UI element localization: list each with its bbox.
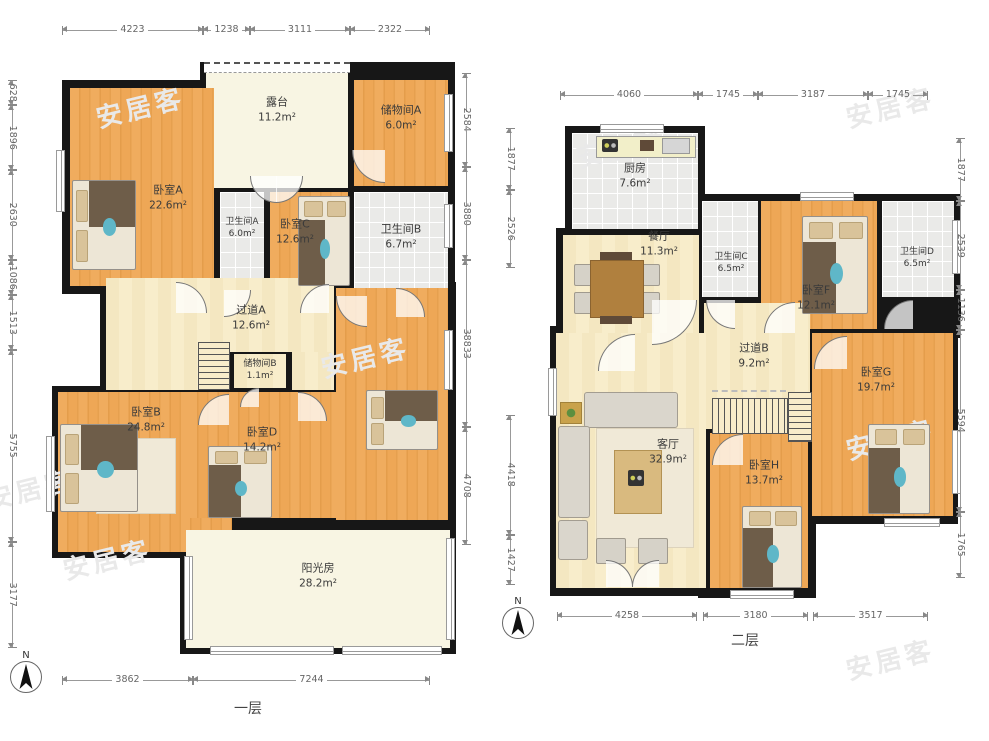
dim-line: [466, 168, 467, 206]
dim-line: [12, 223, 13, 259]
room-label-storage-a: 储物间A6.0m²: [381, 103, 422, 132]
dim-line: [466, 128, 467, 166]
dim-line: [12, 351, 13, 438]
window: [800, 192, 854, 201]
compass-floor2: N: [502, 596, 534, 639]
dimension-horizontal: 7244: [193, 674, 430, 686]
dim-line: [327, 680, 429, 681]
room-hallway-a: [106, 278, 334, 352]
pillow: [371, 423, 384, 445]
room-label-bedroom-b: 卧室B24.8m²: [127, 405, 165, 434]
dim-line: [828, 95, 867, 96]
dimension-horizontal: 3111: [250, 24, 350, 36]
room-name: 卫生间C: [714, 251, 747, 263]
bed: [366, 390, 438, 450]
dim-line: [251, 30, 285, 31]
pillow: [65, 434, 79, 465]
dim-line: [242, 30, 249, 31]
compass-floor1: N: [10, 650, 42, 693]
room-area: 24.8m²: [127, 420, 165, 434]
dim-line: [12, 330, 13, 349]
watermark: 安居客: [842, 630, 938, 688]
teal-accent: [894, 467, 906, 486]
room-name: 卧室F: [797, 283, 835, 298]
pillow: [304, 201, 323, 217]
dim-line: [466, 351, 467, 426]
dim-line: [869, 95, 883, 96]
dimension-vertical: 3880: [460, 167, 472, 260]
cap: [600, 316, 632, 324]
dim-line: [466, 261, 467, 336]
room-name: 储物间A: [381, 103, 422, 118]
room-area: 22.6m²: [149, 198, 187, 212]
floor-caption-floor1: 一层: [234, 698, 262, 718]
room-label-bedroom-a: 卧室A22.6m²: [149, 183, 187, 212]
dim-line: [960, 318, 961, 329]
room-label-kitchen: 厨房7.6m²: [619, 161, 650, 190]
pillow: [327, 201, 346, 217]
dim-line: [960, 177, 961, 200]
tbrown: [590, 260, 644, 318]
dimension-horizontal: 1238: [203, 24, 250, 36]
dimension-vertical: 1427: [504, 535, 516, 585]
stair-dashed-line: [712, 390, 786, 396]
dim-line: [466, 221, 467, 259]
dim-line: [561, 95, 614, 96]
stove: [602, 139, 618, 152]
dim-line: [510, 483, 511, 534]
window: [600, 124, 664, 133]
dim-value: 4223: [120, 25, 144, 35]
room-bath-c: [702, 201, 758, 297]
dim-line: [913, 95, 927, 96]
pillow: [76, 230, 88, 262]
dim-line: [12, 100, 13, 104]
room-area: 13.7m²: [745, 473, 783, 487]
dim-line: [315, 30, 349, 31]
room-name: 卧室A: [149, 183, 187, 198]
dim-line: [466, 74, 467, 112]
cap: [600, 252, 632, 260]
room-area: 14.2m²: [243, 440, 281, 454]
dim-line: [814, 616, 855, 617]
sink: [662, 138, 690, 154]
dim-line: [466, 494, 467, 544]
room-label-sunroom: 阳光房28.2m²: [299, 561, 337, 590]
dim-line: [558, 616, 612, 617]
teal-accent: [97, 461, 114, 478]
bed: [60, 424, 138, 512]
room-area: 12.6m²: [276, 232, 314, 246]
dim-line: [704, 616, 740, 617]
room-label-bath-a: 卫生间A6.0m²: [225, 216, 258, 240]
compass-north-label: N: [22, 650, 29, 661]
window: [444, 330, 453, 390]
room-area: 32.9m²: [649, 452, 687, 466]
window: [884, 518, 940, 527]
room-label-bedroom-c: 卧室C12.6m²: [276, 217, 314, 246]
pillow: [839, 222, 863, 239]
room-area: 1.1m²: [243, 370, 276, 382]
dim-line: [148, 30, 202, 31]
dim-line: [960, 202, 961, 238]
room-label-bath-c: 卫生间C6.5m²: [714, 251, 747, 275]
window: [730, 590, 794, 599]
window: [446, 538, 455, 640]
room-label-living: 客厅32.9m²: [649, 437, 687, 466]
stairs-h: [712, 398, 788, 434]
pillow: [875, 429, 897, 445]
dim-line: [204, 30, 211, 31]
bed: [72, 180, 136, 270]
dim-value: 4258: [615, 611, 639, 621]
window: [210, 646, 334, 655]
dimension-vertical: 5755: [6, 350, 18, 542]
dimension-vertical: 1765: [954, 512, 966, 578]
dimension-horizontal: 4258: [557, 610, 697, 622]
dim-line: [644, 95, 697, 96]
room-name: 过道B: [738, 341, 769, 356]
teal-accent: [103, 218, 117, 236]
dimension-vertical: 628: [6, 80, 18, 105]
dim-value: 2322: [378, 25, 402, 35]
room-area: 11.3m²: [640, 244, 678, 258]
sofa: [584, 392, 678, 428]
room-label-bedroom-d: 卧室D14.2m²: [243, 425, 281, 454]
dim-value: 3187: [801, 90, 825, 100]
room-name: 客厅: [649, 437, 687, 452]
dim-line: [759, 95, 798, 96]
dim-line: [12, 454, 13, 541]
pillow: [775, 511, 797, 526]
room-area: 12.1m²: [797, 298, 835, 312]
window: [548, 368, 557, 416]
dimension-vertical: 5594: [954, 330, 966, 512]
compass-circle: [502, 607, 534, 639]
dimension-horizontal: 3862: [62, 674, 193, 686]
dimension-vertical: 2526: [504, 190, 516, 268]
dimension-vertical: 1086: [6, 260, 18, 295]
room-name: 卫生间D: [900, 246, 934, 258]
dim-line: [194, 680, 296, 681]
dim-line: [960, 331, 961, 413]
room-area: 6.5m²: [900, 258, 934, 270]
window: [46, 436, 55, 512]
bed: [208, 446, 272, 518]
room-label-hallway-b: 过道B9.2m²: [738, 341, 769, 370]
dim-line: [12, 603, 13, 647]
dim-line: [466, 428, 467, 478]
room-area: 6.5m²: [714, 263, 747, 275]
room-area: 11.2m²: [258, 110, 296, 124]
dimension-vertical: 1513: [6, 295, 18, 350]
room-label-bedroom-f: 卧室F12.1m²: [797, 283, 835, 312]
dimension-horizontal: 1745: [698, 89, 758, 101]
window: [342, 646, 442, 655]
room-area: 9.2m²: [738, 356, 769, 370]
floor-caption-floor2: 二层: [731, 630, 759, 650]
dim-line: [63, 30, 117, 31]
dim-line: [960, 253, 961, 289]
dim-line: [510, 568, 511, 584]
dim-line: [743, 95, 757, 96]
bed: [868, 424, 930, 514]
room-name: 卫生间A: [225, 216, 258, 228]
dim-value: 1745: [716, 90, 740, 100]
teal-accent: [830, 263, 843, 284]
room-label-bedroom-h: 卧室H13.7m²: [745, 458, 783, 487]
room-label-bath-b: 卫生间B6.7m²: [381, 222, 422, 251]
room-name: 卧室G: [857, 365, 895, 380]
dim-value: 3862: [115, 675, 139, 685]
sofa: [558, 426, 590, 518]
dim-line: [12, 543, 13, 587]
room-name: 露台: [258, 95, 296, 110]
dim-line: [642, 616, 696, 617]
teal-accent: [401, 415, 416, 427]
dimension-vertical: 38833: [460, 260, 472, 427]
dimension-vertical: 2630: [6, 170, 18, 260]
room-area: 6.7m²: [381, 237, 422, 251]
dimension-vertical: 4418: [504, 415, 516, 535]
room-name: 卧室C: [276, 217, 314, 232]
cap: [640, 140, 654, 151]
floorplan-canvas: 露台11.2m²储物间A6.0m²卧室A22.6m²卫生间A6.0m²卧室C12…: [0, 0, 989, 741]
compass-circle: [10, 661, 42, 693]
dim-line: [510, 237, 511, 267]
watermark: 安居客: [842, 78, 938, 136]
room-label-storage-b: 储物间B1.1m²: [243, 358, 276, 382]
dim-line: [510, 167, 511, 189]
dimension-vertical: 1877: [954, 138, 966, 201]
room-label-hallway-a: 过道A12.6m²: [232, 303, 270, 332]
dimension-horizontal: 3187: [758, 89, 868, 101]
room-label-terrace: 露台11.2m²: [258, 95, 296, 124]
teal-accent: [235, 481, 247, 496]
pillow: [809, 222, 833, 239]
dim-line: [960, 429, 961, 511]
room-area: 12.6m²: [232, 318, 270, 332]
dim-line: [886, 616, 927, 617]
room-name: 卧室B: [127, 405, 165, 420]
room-area: 7.6m²: [619, 176, 650, 190]
pillow: [76, 190, 88, 222]
stairs-v: [198, 342, 230, 390]
dim-line: [12, 285, 13, 294]
room-name: 储物间B: [243, 358, 276, 370]
pillow: [371, 397, 384, 419]
sofa: [558, 520, 588, 560]
terrace-dashed-edge: [204, 62, 350, 73]
room-terrace: [206, 68, 348, 188]
pillow: [903, 429, 925, 445]
dim-value: 7244: [299, 675, 323, 685]
chair: [642, 264, 660, 286]
room-label-dining: 餐厅11.3m²: [640, 229, 678, 258]
pillow: [215, 451, 238, 464]
room-name: 阳光房: [299, 561, 337, 576]
dim-value: 628: [7, 83, 17, 101]
dim-value: 1238: [214, 25, 238, 35]
dim-line: [143, 680, 192, 681]
room-name: 卫生间B: [381, 222, 422, 237]
room-label-bedroom-g: 卧室G19.7m²: [857, 365, 895, 394]
window: [444, 204, 453, 248]
dim-line: [699, 95, 713, 96]
room-area: 6.0m²: [381, 118, 422, 132]
dimension-vertical: 4708: [460, 427, 472, 545]
dimension-horizontal: 1745: [868, 89, 928, 101]
dim-line: [351, 30, 375, 31]
dim-line: [771, 616, 807, 617]
room-name: 卧室D: [243, 425, 281, 440]
dim-line: [510, 416, 511, 467]
dim-line: [12, 145, 13, 169]
dimension-horizontal: 3517: [813, 610, 928, 622]
pillow: [749, 511, 771, 526]
stove: [628, 470, 644, 486]
dim-value: 1745: [886, 90, 910, 100]
room-area: 19.7m²: [857, 380, 895, 394]
dim-line: [960, 553, 961, 577]
dimension-vertical: 2539: [954, 201, 966, 290]
window: [56, 150, 65, 212]
dim-value: 3111: [288, 25, 312, 35]
room-name: 卧室H: [745, 458, 783, 473]
dim-value: 3180: [743, 611, 767, 621]
room-name: 过道A: [232, 303, 270, 318]
dimension-horizontal: 4223: [62, 24, 203, 36]
room-label-bath-d: 卫生间D6.5m²: [900, 246, 934, 270]
dimension-vertical: 1136: [954, 290, 966, 330]
stairs-v: [788, 392, 812, 442]
compass-needle-icon: [20, 664, 33, 689]
dim-value: 3517: [858, 611, 882, 621]
room-area: 6.0m²: [225, 228, 258, 240]
compass-north-label: N: [514, 596, 521, 607]
dimension-vertical: 3177: [6, 542, 18, 648]
dimension-vertical: 1896: [6, 105, 18, 170]
window: [184, 556, 193, 640]
dimension-vertical: 2584: [460, 73, 472, 167]
dim-value: 4060: [617, 90, 641, 100]
plant: [560, 402, 582, 424]
dimension-horizontal: 2322: [350, 24, 430, 36]
dimension-horizontal: 3180: [703, 610, 808, 622]
teal-accent: [320, 239, 330, 258]
compass-needle-icon: [512, 610, 525, 635]
teal-accent: [767, 545, 779, 563]
room-name: 餐厅: [640, 229, 678, 244]
dimension-horizontal: 4060: [560, 89, 698, 101]
dim-line: [63, 680, 112, 681]
room-area: 28.2m²: [299, 576, 337, 590]
window: [444, 94, 453, 152]
room-name: 厨房: [619, 161, 650, 176]
pillow: [65, 473, 79, 504]
bed: [742, 506, 802, 588]
dim-line: [405, 30, 429, 31]
dimension-vertical: 1877: [504, 128, 516, 190]
